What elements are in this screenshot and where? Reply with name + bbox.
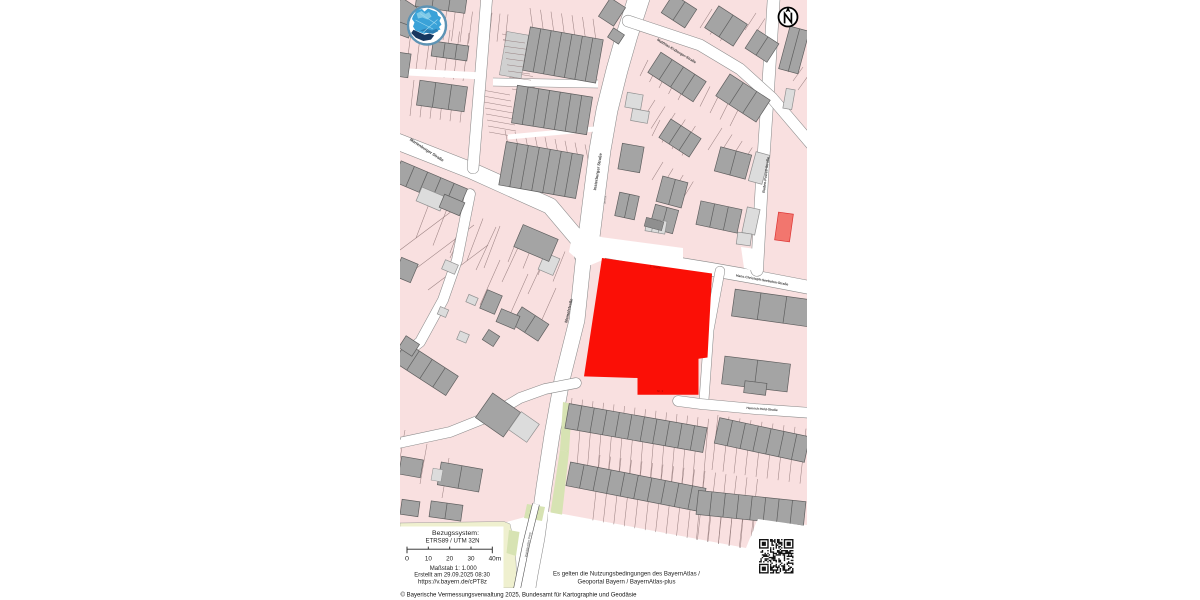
svg-text:https://v.bayern.de/cPT8z: https://v.bayern.de/cPT8z	[418, 579, 487, 586]
svg-text:ETRS89 / UTM 32N: ETRS89 / UTM 32N	[426, 537, 480, 544]
svg-text:© Bayerische Vermessungsverwal: © Bayerische Vermessungsverwaltung 2025,…	[401, 592, 638, 599]
svg-text:Bezugssystem:: Bezugssystem:	[432, 530, 479, 537]
svg-text:Erstellt am 29.09.2025 08:30: Erstellt am 29.09.2025 08:30	[414, 571, 490, 578]
svg-text:10: 10	[425, 555, 432, 562]
svg-text:Maßstab 1: 1.000: Maßstab 1: 1.000	[430, 565, 477, 572]
svg-text:Geoportal Bayern / BayernAtlas: Geoportal Bayern / BayernAtlas-plus	[578, 579, 676, 586]
svg-text:40m: 40m	[489, 555, 502, 562]
svg-text:0: 0	[405, 555, 410, 562]
svg-text:Es gelten die Nutzungsbedingun: Es gelten die Nutzungsbedingungen des Ba…	[553, 571, 700, 578]
svg-text:20: 20	[446, 555, 453, 562]
svg-text:30: 30	[467, 555, 474, 562]
svg-text:Nr. 1: Nr. 1	[657, 389, 664, 393]
